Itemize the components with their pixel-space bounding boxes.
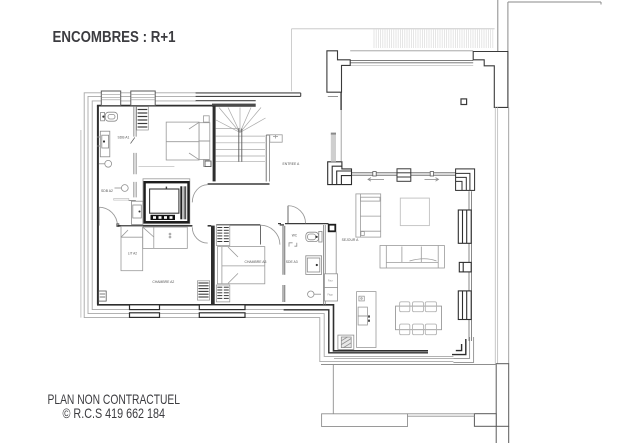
svg-text:LIT A2: LIT A2 — [128, 252, 137, 256]
svg-text:Four: Four — [328, 280, 333, 283]
svg-text:SDB A1: SDB A1 — [118, 136, 130, 140]
svg-text:Frigo: Frigo — [328, 293, 334, 296]
svg-text:CHAMBRE A2: CHAMBRE A2 — [152, 280, 174, 284]
svg-text:ENCOMBRES : R+1: ENCOMBRES : R+1 — [53, 29, 176, 46]
svg-text:PLAN NON CONTRACTUEL: PLAN NON CONTRACTUEL — [48, 392, 181, 407]
svg-text:© R.C.S 419 662 184: © R.C.S 419 662 184 — [63, 406, 166, 421]
svg-text:SDE A3: SDE A3 — [286, 260, 298, 264]
svg-text:WC: WC — [292, 234, 298, 238]
svg-text:SEJOUR A: SEJOUR A — [342, 238, 360, 242]
svg-text:CHAMBRE A3: CHAMBRE A3 — [245, 260, 267, 264]
svg-text:SDB A2: SDB A2 — [101, 189, 113, 193]
svg-text:ENTREE A: ENTREE A — [283, 162, 301, 166]
